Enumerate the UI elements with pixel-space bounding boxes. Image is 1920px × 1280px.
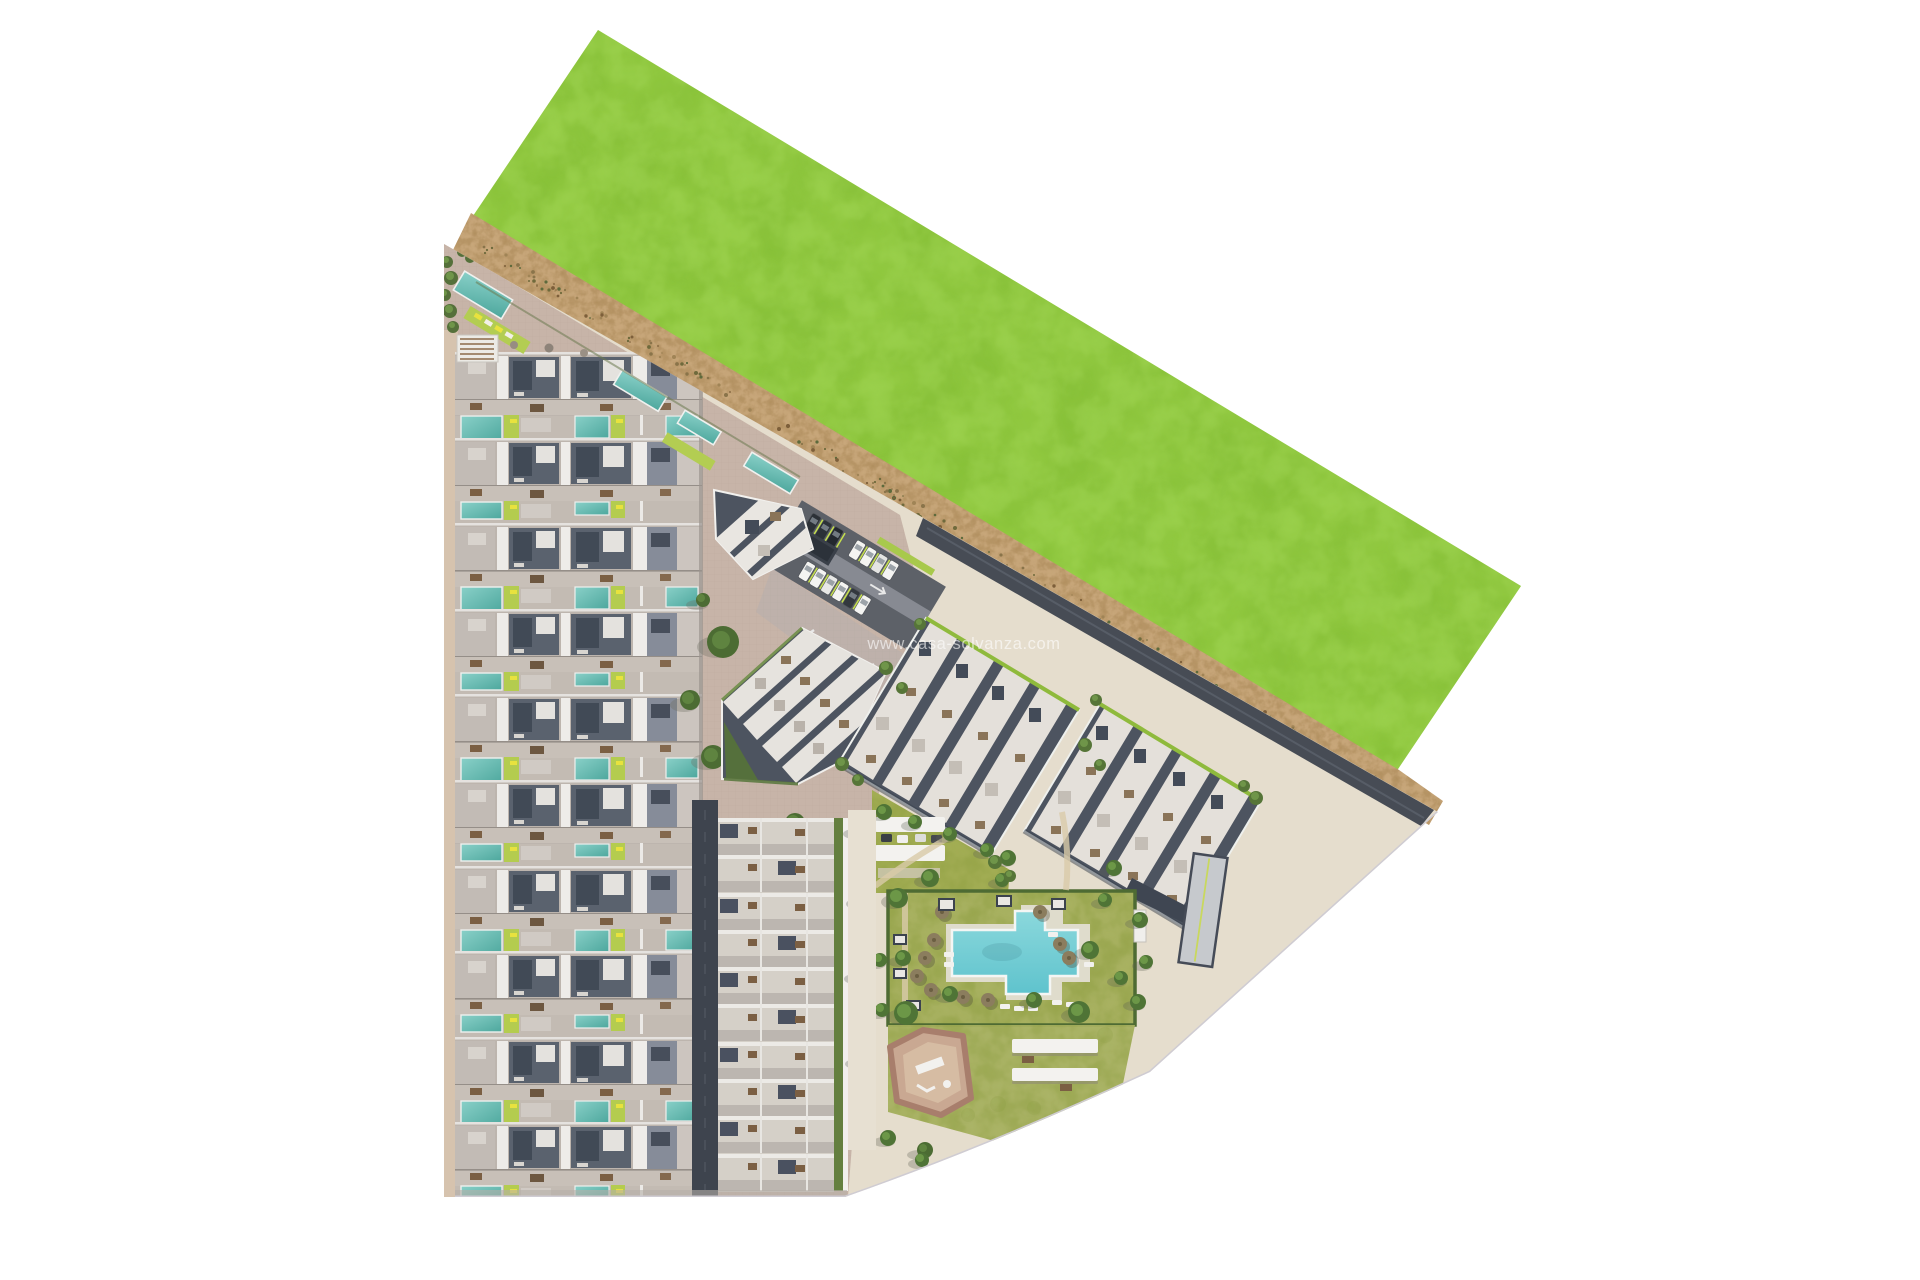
svg-text:www.casa-solvanza.com: www.casa-solvanza.com [866, 635, 1060, 653]
